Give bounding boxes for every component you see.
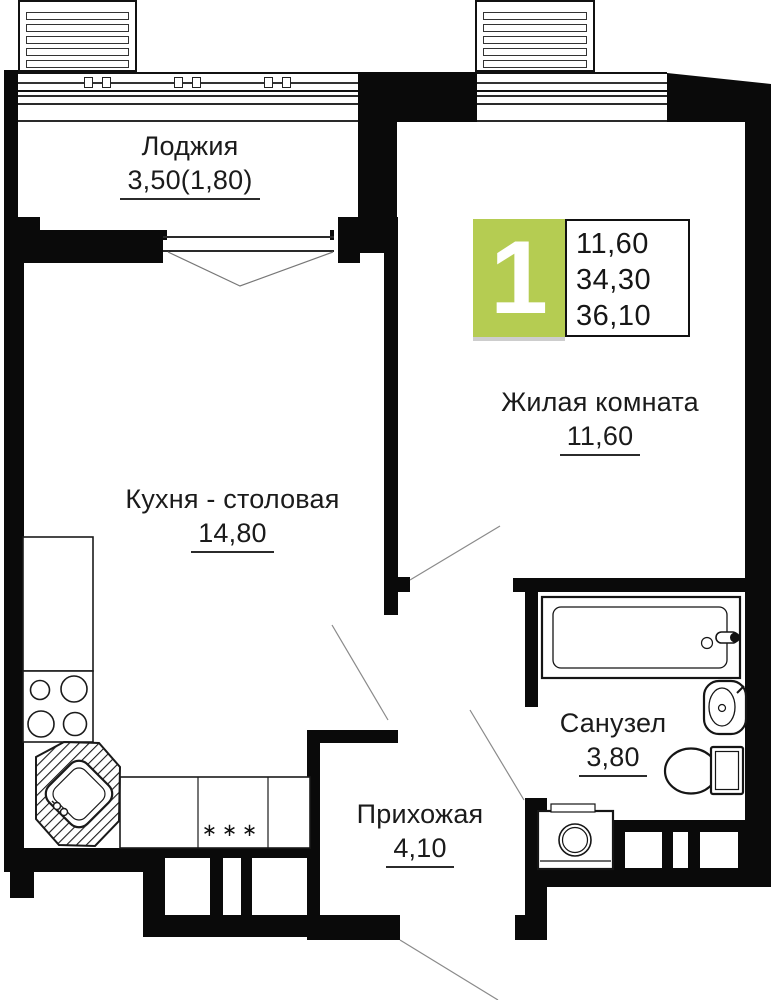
room-label-living: Жилая комната 11,60	[455, 385, 745, 456]
badge-areas: 11,60 34,30 36,10	[565, 219, 690, 337]
kitchen-fixtures	[23, 537, 310, 848]
window-swing-lines	[168, 252, 333, 286]
badge-area-value: 11,60	[576, 226, 688, 262]
room-area: 11,60	[560, 419, 641, 456]
badge-shadow	[473, 337, 565, 341]
sink-faucet-knob	[61, 809, 68, 816]
kitchen-cabinet	[23, 537, 93, 671]
room-name: Кухня - столовая	[95, 482, 370, 516]
floor-plan: Лоджия 3,50(1,80) Жилая комната 11,60 Ку…	[0, 0, 771, 1000]
room-area: 14,80	[191, 516, 274, 553]
counter-marks: ∗∗∗	[200, 820, 264, 841]
room-area: 3,50(1,80)	[120, 163, 259, 200]
room-area: 4,10	[386, 831, 453, 868]
unit-badge: 1 11,60 34,30 36,10	[473, 219, 690, 337]
room-area: 3,80	[579, 740, 646, 777]
sink-faucet-knob	[54, 803, 61, 810]
badge-area-value: 36,10	[576, 298, 688, 334]
room-name: Прихожая	[330, 797, 510, 831]
leader-line	[332, 625, 388, 720]
leader-line	[410, 526, 500, 580]
room-label-bathroom: Санузел 3,80	[528, 706, 698, 777]
bathtub-faucet-head	[730, 633, 740, 643]
badge-area-value: 34,30	[576, 262, 688, 298]
room-label-hallway: Прихожая 4,10	[330, 797, 510, 868]
washing-machine	[538, 811, 613, 869]
room-label-kitchen: Кухня - столовая 14,80	[95, 482, 370, 553]
sloped-exterior-wall	[667, 73, 771, 122]
room-name: Жилая комната	[455, 385, 745, 419]
washing-machine-panel	[551, 804, 595, 812]
stove	[23, 671, 93, 742]
room-name: Санузел	[528, 706, 698, 740]
badge-room-count: 1	[473, 219, 565, 337]
leader-line	[400, 940, 498, 1000]
leader-line	[470, 710, 524, 800]
room-label-loggia: Лоджия 3,50(1,80)	[70, 129, 310, 200]
bathtub	[542, 597, 740, 678]
leader-lines	[332, 526, 524, 1000]
room-name: Лоджия	[70, 129, 310, 163]
